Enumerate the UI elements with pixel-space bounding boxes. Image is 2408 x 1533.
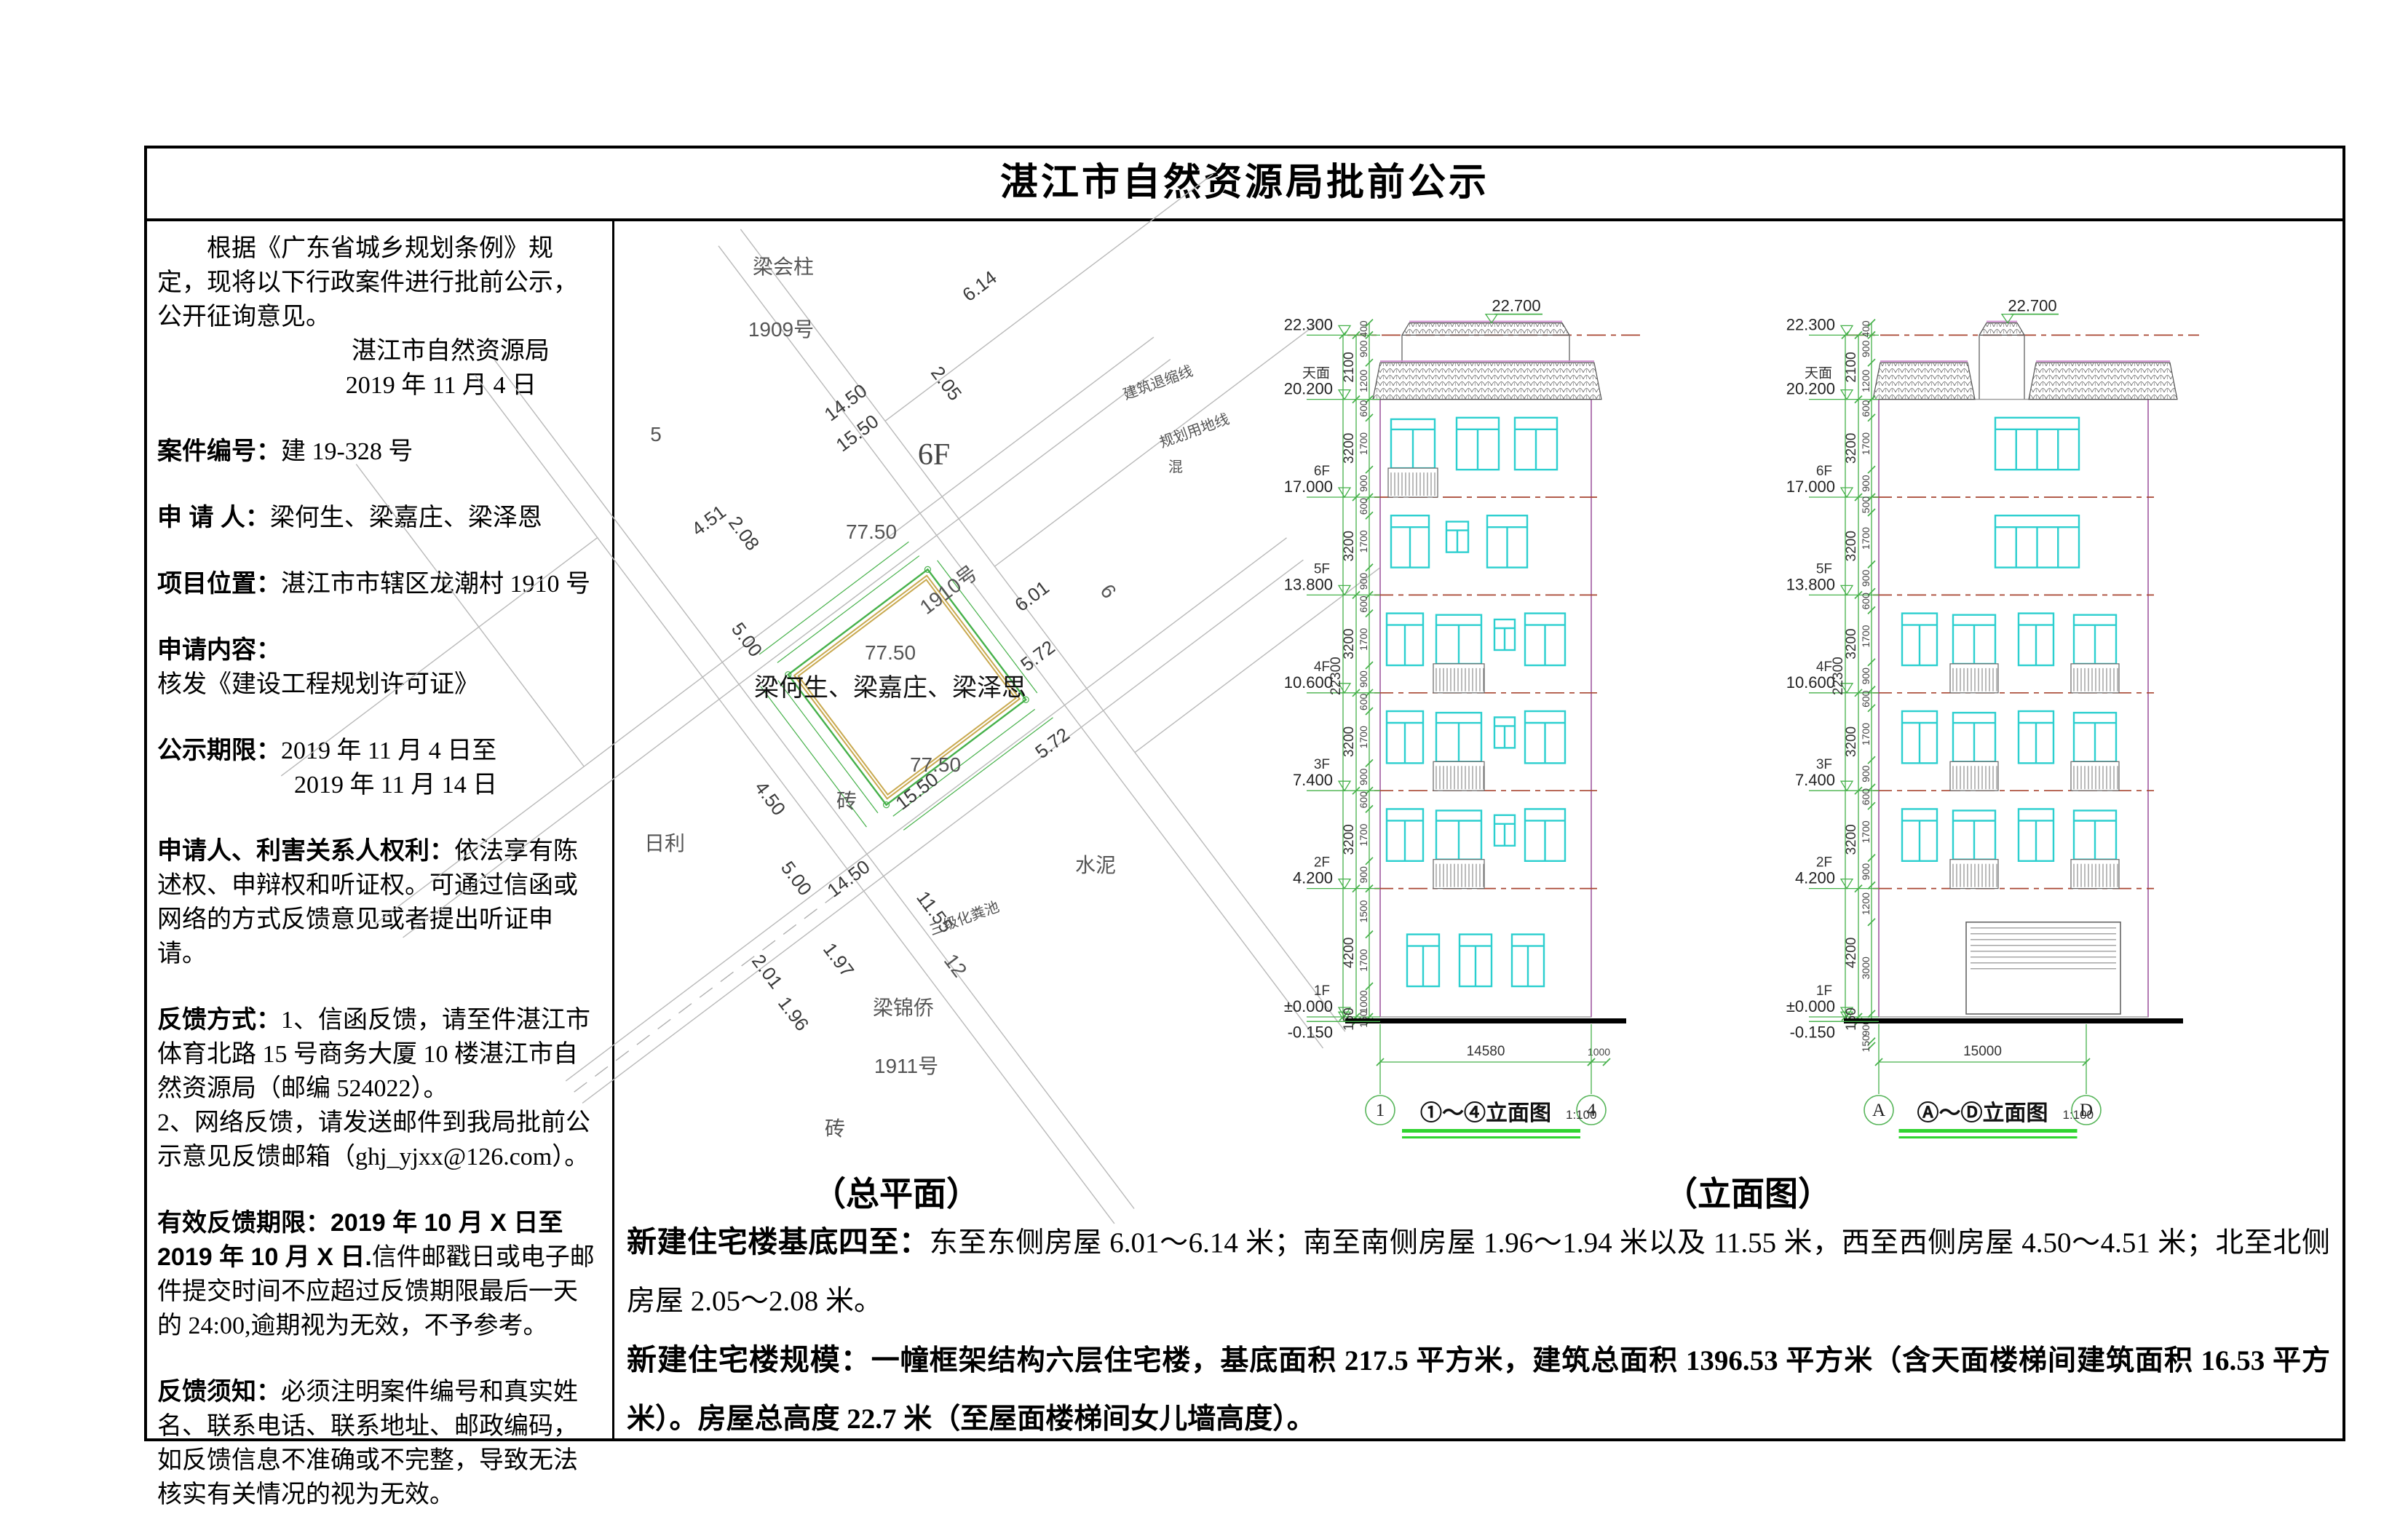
elevation-label: 900 (1358, 340, 1369, 357)
elevation-label: 22300 (1328, 657, 1344, 695)
plan-label: 77.50 (910, 753, 961, 776)
elevation-label: 22.700 (2008, 297, 2056, 315)
elevation-label: 1500 (1358, 900, 1369, 922)
elevation-label: 1700 (1860, 723, 1872, 745)
elevation-label: 3000 (1860, 956, 1872, 979)
elevation-label: 600 (1860, 690, 1872, 708)
elevation-label: 3200 (1844, 531, 1859, 561)
field-label: 申请内容： (157, 636, 281, 664)
elevation-label: 600 (1358, 694, 1369, 711)
elevation-label: -0.150 (1288, 1023, 1333, 1041)
elevation-label: 500 (1860, 496, 1872, 514)
field-value-2: 2019 年 11 月 14 日 (157, 768, 601, 802)
field-label: 申请人、利害关系人权利： (157, 837, 454, 865)
elevation-label: 4.200 (1795, 869, 1835, 887)
elevation-label: 400 (1358, 320, 1369, 338)
notice-text-panel: 根据《广东省城乡规划条例》规定，现将以下行政案件进行批前公示，公开征询意见。 湛… (147, 221, 614, 1438)
elevation-label: 4.200 (1293, 869, 1333, 887)
plan-label: 6.14 (958, 266, 1000, 306)
site-plan-drawing: 梁会柱1909号6.142.05建筑退缩线规划用地线混14.5015.506F5… (619, 221, 1333, 1160)
elevation-label: 5F (1816, 561, 1832, 577)
elevation-label: 3F (1816, 757, 1832, 772)
notice-field: 反馈方式：1、信函反馈，请至件湛江市体育北路 15 号商务大厦 10 楼湛江市自… (157, 1003, 601, 1174)
elevation-label: 900 (1860, 668, 1872, 685)
notice-field: 公示期限：2019 年 11 月 4 日至2019 年 11 月 14 日 (157, 734, 601, 802)
elevation-label: 900 (1358, 768, 1369, 785)
elevation-label: 1700 (1358, 823, 1369, 846)
field-label: 反馈须知： (157, 1378, 281, 1406)
elevation-label: 4200 (1844, 938, 1859, 968)
plan-label: 6F (918, 438, 950, 472)
elevation-label: 600 (1358, 400, 1369, 417)
site-plan-labels: 梁会柱1909号6.142.05建筑退缩线规划用地线混14.5015.506F5… (644, 255, 1232, 1140)
notice-field: 项目位置：湛江市市辖区龙潮村 1910 号 (157, 567, 601, 601)
field-label: 公示期限： (157, 737, 281, 764)
elevation-label: 3200 (1342, 628, 1357, 659)
elevation-label: 1700 (1358, 432, 1369, 455)
notice-field: 反馈须知：必须注明案件编号和真实姓名、联系电话、联系地址、邮政编码，如反馈信息不… (157, 1375, 601, 1512)
elevation-label: 4200 (1342, 938, 1357, 968)
elevation-label: 1700 (1860, 527, 1872, 550)
page-title: 湛江市自然资源局批前公示 (1000, 162, 1489, 204)
plan-label: 12 (940, 950, 972, 982)
elevation-label: 5F (1314, 561, 1330, 577)
plan-label: 2.08 (724, 512, 764, 554)
field-label: 项目位置： (157, 570, 281, 598)
elevation-label: 900 (1860, 863, 1872, 881)
elevation-label: 1700 (1860, 820, 1872, 843)
elevation-label: 1700 (1358, 530, 1369, 552)
field-value: 2019 年 11 月 4 日至 (281, 737, 496, 764)
elevation-label: 3200 (1342, 726, 1357, 757)
header: 湛江市自然资源局批前公示 (147, 148, 2342, 221)
plan-label: 砖 (825, 1117, 845, 1140)
elevation-label: 900 (1358, 866, 1369, 884)
field-label: 有效反馈期限： (157, 1209, 330, 1237)
plan-label: 1911号 (874, 1055, 938, 1077)
elevation-label: 22.300 (1284, 315, 1333, 333)
elevation-label: 10.600 (1786, 673, 1835, 692)
elevation-label: ①～④立面图 (1420, 1101, 1551, 1125)
elevation-label: 1000 (1358, 990, 1369, 1013)
elevation-label: 400 (1860, 320, 1872, 338)
elevation-label: 3200 (1844, 628, 1859, 659)
elevation-label: 20.200 (1284, 380, 1333, 398)
elevation-label: 1:100 (2063, 1108, 2094, 1122)
notice-field: 申 请 人：梁何生、梁嘉庄、梁泽恩 (157, 501, 601, 535)
notice-authority: 湛江市自然资源局 (157, 334, 601, 368)
elevation-label: 22.300 (1786, 315, 1835, 333)
elevation-label: 22300 (1831, 657, 1846, 695)
elevation-drawing-1-4: 22.70022.300天面20.2006F17.0005F13.8004F10… (1282, 242, 1791, 1166)
elevation-label: 7.400 (1795, 771, 1835, 789)
field-value: 湛江市市辖区龙潮村 1910 号 (281, 571, 590, 598)
summary-lead: 新建住宅楼基底四至： (627, 1225, 930, 1259)
elevation-label: 1200 (1358, 370, 1369, 392)
elevation-label: 3200 (1844, 433, 1859, 464)
elevation-label: 天面 (1805, 366, 1832, 381)
elevation-label: 1700 (1358, 628, 1369, 651)
elevation-label: A (1872, 1101, 1885, 1120)
elevation-label: 600 (1860, 593, 1872, 610)
elevation-label: 900 (1860, 569, 1872, 587)
plan-label: 1.96 (774, 992, 813, 1034)
plan-label: 梁锦侨 (873, 997, 934, 1019)
elevation-drawing-a-d: 22.70022.300天面20.2006F17.0005F13.8004F10… (1784, 242, 2323, 1166)
elevation-label: 10.600 (1284, 673, 1333, 692)
elevation-label: 13.800 (1284, 575, 1333, 593)
plan-label: 2.05 (927, 362, 966, 404)
notice-field: 有效反馈期限：2019 年 10 月 X 日至 2019 年 10 月 X 日.… (157, 1206, 601, 1343)
elevation-label: Ⓐ～Ⓓ立面图 (1917, 1101, 2048, 1125)
summary-paragraph: 新建住宅楼基底四至：东至东侧房屋 6.01～6.14 米；南至南侧房屋 1.96… (627, 1213, 2330, 1331)
elevation-label: 14580 (1467, 1044, 1505, 1059)
elevation-label: 2100 (1844, 352, 1859, 382)
elevation-label: 900 (1860, 340, 1872, 357)
elevation-label: 900 (1358, 475, 1369, 492)
elevation-label: 3200 (1844, 726, 1859, 757)
field-value: 梁何生、梁嘉庄、梁泽恩 (270, 504, 542, 531)
plan-label: 77.50 (846, 520, 897, 543)
plan-label: 水泥 (1075, 854, 1116, 876)
elevation-label: 3200 (1342, 824, 1357, 855)
elevation-label: 1 (1376, 1101, 1385, 1120)
elevation-label: 600 (1358, 595, 1369, 613)
field-label: 反馈方式： (157, 1006, 281, 1034)
summary-paragraph: 新建住宅楼规模：一幢框架结构六层住宅楼，基底面积 217.5 平方米，建筑总面积… (627, 1331, 2330, 1449)
plan-label: 5.00 (777, 857, 816, 899)
plan-label: 4.51 (687, 501, 729, 540)
elevation-label: 1700 (1860, 625, 1872, 647)
elevation-label: 2F (1314, 855, 1330, 871)
plan-label: 6 (1096, 580, 1121, 603)
summary-paragraphs: 新建住宅楼基底四至：东至东侧房屋 6.01～6.14 米；南至南侧房屋 1.96… (627, 1213, 2330, 1449)
elevation-label: 3200 (1342, 531, 1357, 561)
elevation-label: 3200 (1844, 824, 1859, 855)
field-value-2: 2、网络反馈，请发送邮件到我局批前公示意见反馈邮箱（ghj_yjxx@126.c… (157, 1106, 601, 1174)
elevation-label: 1:100 (1566, 1108, 1597, 1122)
elevation-label: 6F (1816, 464, 1832, 479)
notice-fields: 案件编号：建 19-328 号申 请 人：梁何生、梁嘉庄、梁泽恩项目位置：湛江市… (157, 435, 601, 1512)
elevation-label: 600 (1358, 791, 1369, 809)
elevation-label: ±0.000 (1786, 997, 1835, 1015)
plan-label: 砖 (836, 790, 857, 812)
elevation-label: 17.000 (1786, 478, 1835, 496)
elevation-label: 1700 (1860, 432, 1872, 455)
drawings-panel: 梁会柱1909号6.142.05建筑退缩线规划用地线混14.5015.506F5… (619, 221, 2342, 1438)
plan-label: 梁何生、梁嘉庄、梁泽思 (754, 674, 1026, 702)
summary-lead: 新建住宅楼规模： (627, 1343, 871, 1376)
field-value: 核发《建设工程规划许可证》 (157, 671, 479, 698)
elevation-label: 天面 (1302, 366, 1330, 381)
plan-label: 1909号 (748, 318, 814, 341)
elevation-label: 22.700 (1492, 297, 1540, 315)
elevation-label: 17.000 (1284, 478, 1333, 496)
elevation-label: 4F (1816, 659, 1832, 675)
elevation-label: 20.200 (1786, 380, 1835, 398)
elevation-label: 13.800 (1786, 575, 1835, 593)
elevation-label: 150 (1860, 1035, 1872, 1053)
plan-label: 6.01 (1010, 577, 1053, 616)
elevation-label: 1F (1816, 983, 1832, 999)
notice-sheet: 湛江市自然资源局批前公示 根据《广东省城乡规划条例》规定，现将以下行政案件进行批… (0, 0, 2408, 1533)
elevation-label: 15000 (1963, 1044, 2002, 1059)
plan-label: 日利 (644, 832, 685, 855)
plan-label: 1.97 (819, 938, 858, 981)
elevation-label: 900 (1860, 765, 1872, 783)
notice-field: 案件编号：建 19-328 号 (157, 435, 601, 469)
elevation-label: 1700 (1358, 949, 1369, 972)
site-plan-caption: （总平面） (743, 1168, 1049, 1216)
elevation-label: 3200 (1342, 433, 1357, 464)
elevation-label: 900 (1860, 475, 1872, 492)
plan-label: 混 (1168, 459, 1183, 475)
elevation-label: 1200 (1860, 892, 1872, 915)
elevation-label: 7.400 (1293, 771, 1333, 789)
plan-label: 规划用地线 (1157, 411, 1232, 451)
notice-intro: 根据《广东省城乡规划条例》规定，现将以下行政案件进行批前公示，公开征询意见。 (157, 231, 601, 334)
elevation-label: 2F (1816, 855, 1832, 871)
summary-text: 一幢框架结构六层住宅楼，基底面积 217.5 平方米，建筑总面积 1396.53… (627, 1345, 2330, 1435)
elevation-label: 900 (1358, 573, 1369, 590)
field-label: 案件编号： (157, 437, 281, 465)
notice-field: 申请内容：核发《建设工程规划许可证》 (157, 633, 601, 702)
document-frame: 湛江市自然资源局批前公示 根据《广东省城乡规划条例》规定，现将以下行政案件进行批… (144, 146, 2345, 1441)
elevation-label: 6F (1314, 464, 1330, 479)
elevation-label: 1F (1314, 983, 1330, 999)
notice-field: 申请人、利害关系人权利：依法享有陈述权、申辩权和听证权。可通过信函或网络的方式反… (157, 834, 601, 971)
elevation-label: 3F (1314, 757, 1330, 772)
plan-label: 梁会柱 (753, 255, 814, 278)
elevation-label: 600 (1860, 788, 1872, 806)
elevation-label: 600 (1860, 400, 1872, 417)
field-label: 申 请 人： (157, 504, 270, 531)
elevation-caption: （立面图） (1595, 1168, 1901, 1216)
notice-date: 2019 年 11 月 4 日 (157, 368, 601, 403)
elevation-label: 1200 (1860, 370, 1872, 392)
elevation-label: 1700 (1358, 726, 1369, 748)
elevation-label: 900 (1358, 670, 1369, 688)
plan-label: 77.50 (865, 641, 916, 664)
plan-label: 5 (650, 423, 662, 445)
field-value: 建 19-328 号 (281, 438, 413, 465)
elevation-label: 4F (1314, 659, 1330, 675)
elevation-label: 600 (1358, 498, 1369, 515)
elevation-label: 2100 (1342, 352, 1357, 382)
plan-label: 4.50 (750, 777, 790, 819)
elevation-label: ±0.000 (1284, 997, 1333, 1015)
elevation-label: -0.150 (1790, 1023, 1835, 1041)
